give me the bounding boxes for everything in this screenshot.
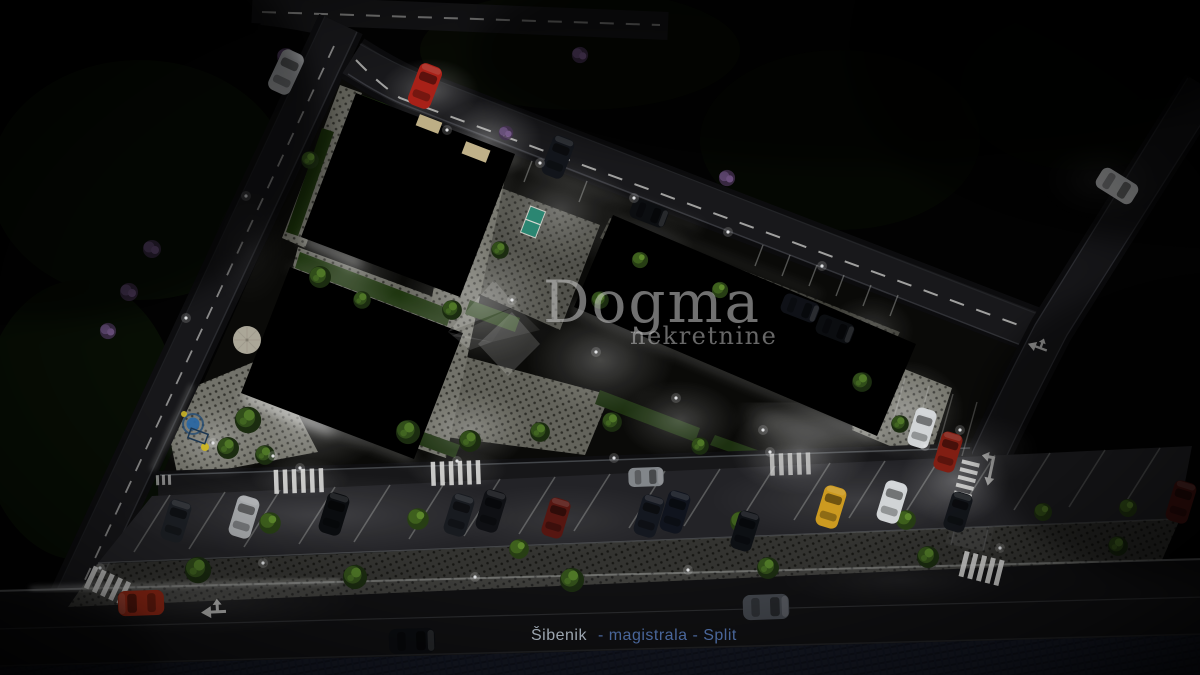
caption-city-from: Šibenik: [531, 625, 587, 644]
caption-route-rest: - magistrala - Split: [598, 627, 737, 644]
aerial-night-render: Dogma nekretnine Šibenik - magistrala - …: [0, 0, 1200, 675]
site-plan-canvas: Dogma nekretnine Šibenik - magistrala - …: [0, 0, 1200, 675]
night-vignette: [0, 0, 1200, 675]
watermark-subtitle-text: nekretnine: [630, 322, 777, 350]
location-caption: Šibenik - magistrala - Split: [531, 625, 737, 644]
